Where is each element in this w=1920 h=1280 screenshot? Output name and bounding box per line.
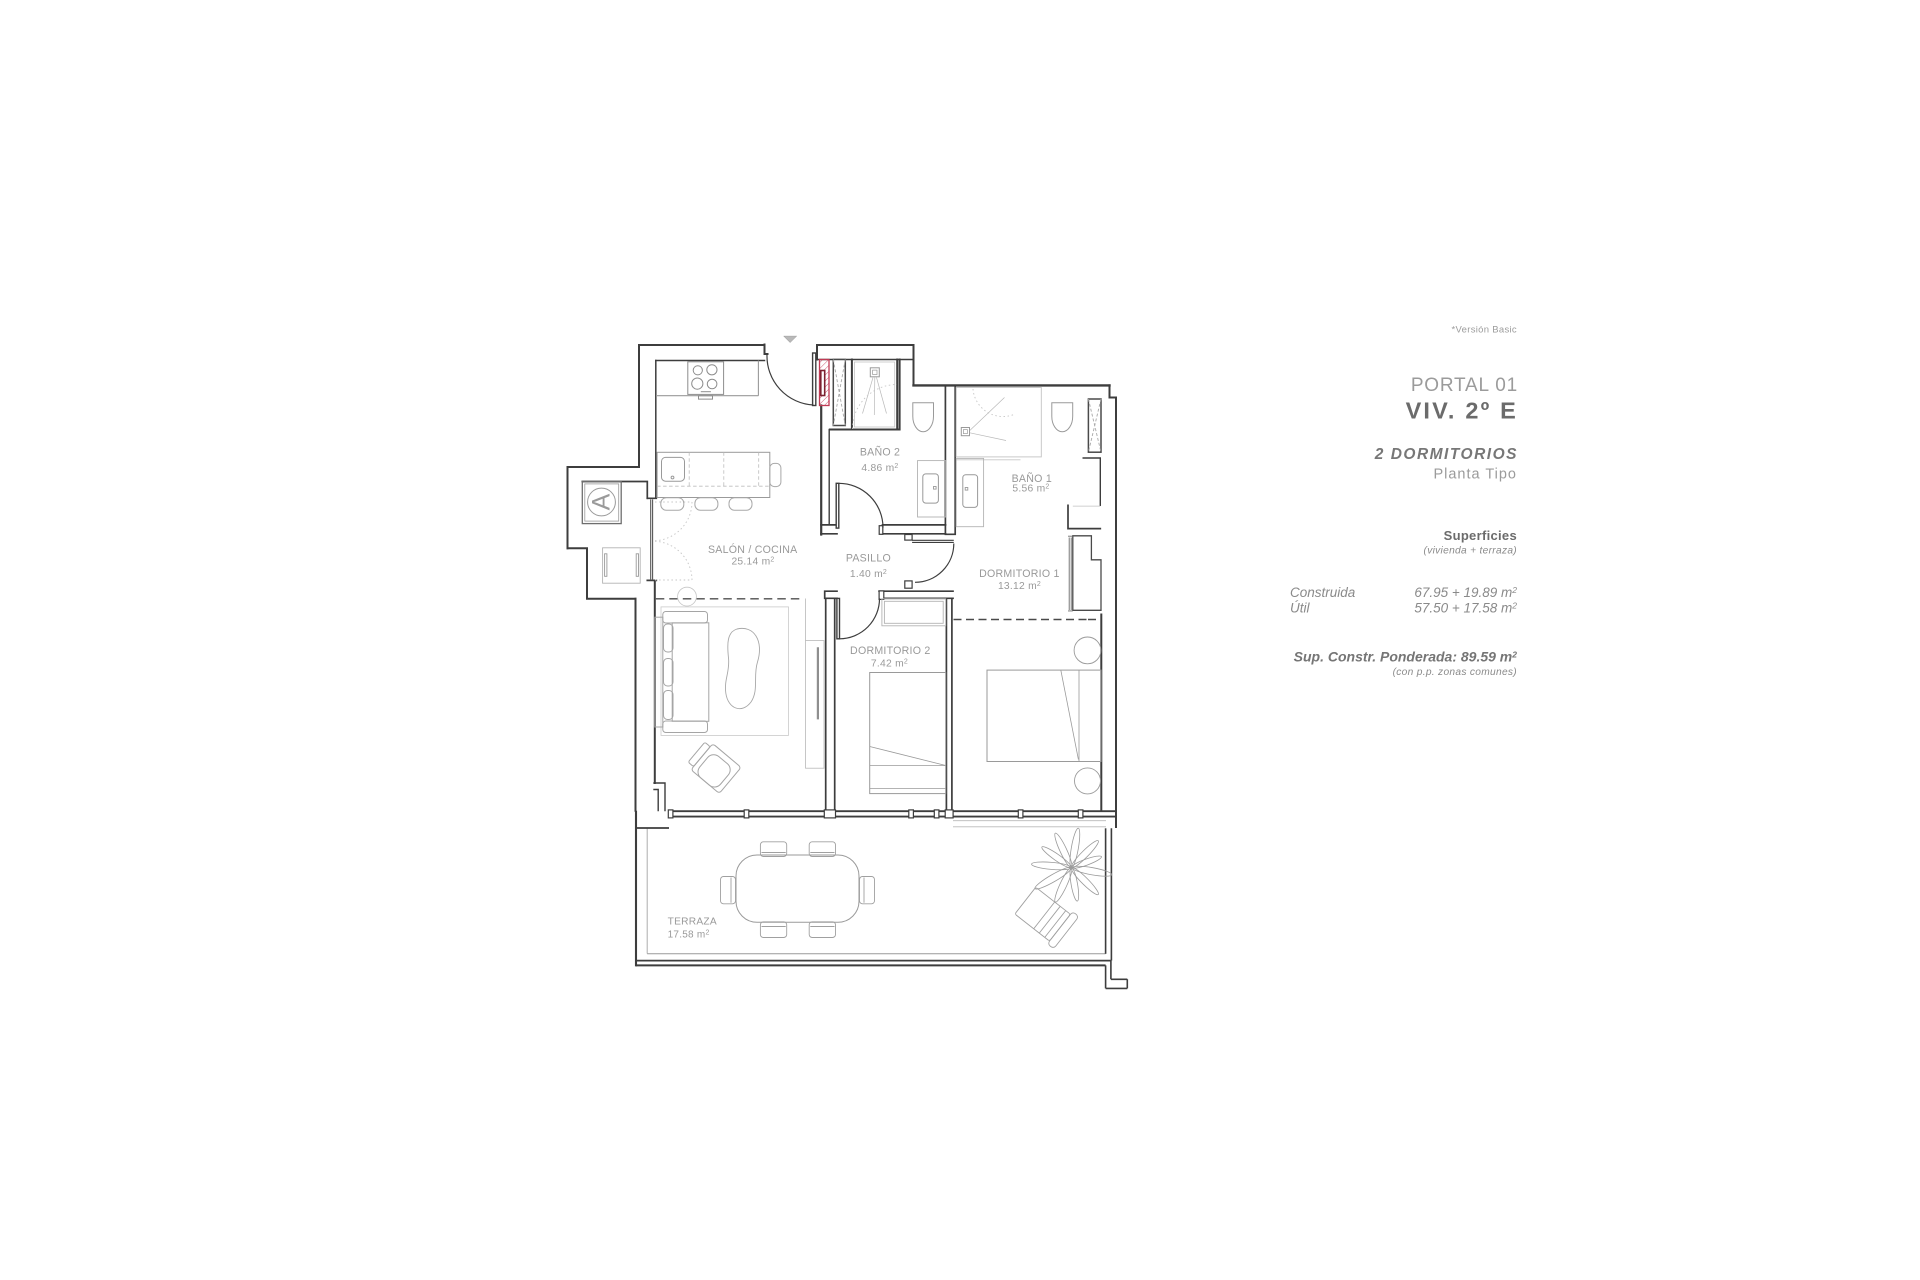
svg-text:(con p.p. zonas comunes): (con p.p. zonas comunes) (1393, 667, 1517, 678)
svg-text:A: A (588, 493, 616, 510)
svg-text:Planta Tipo: Planta Tipo (1433, 467, 1517, 483)
svg-text:13.12 m2: 13.12 m2 (998, 581, 1041, 592)
svg-text:SALÓN / COCINA: SALÓN / COCINA (708, 543, 798, 556)
svg-text:57.50 + 17.58 m2: 57.50 + 17.58 m2 (1414, 601, 1517, 616)
svg-text:Superficies: Superficies (1444, 528, 1517, 543)
svg-text:7.42 m2: 7.42 m2 (871, 659, 908, 670)
svg-text:VIV. 2º E: VIV. 2º E (1406, 398, 1518, 424)
svg-text:PASILLO: PASILLO (846, 552, 891, 564)
svg-text:Construida: Construida (1290, 585, 1356, 600)
svg-text:Útil: Útil (1290, 601, 1310, 616)
svg-text:25.14 m2: 25.14 m2 (731, 557, 774, 568)
svg-text:17.58 m2: 17.58 m2 (668, 930, 710, 941)
svg-text:DORMITORIO 1: DORMITORIO 1 (979, 568, 1060, 580)
svg-text:5.56 m2: 5.56 m2 (1012, 484, 1049, 495)
svg-text:PORTAL 01: PORTAL 01 (1411, 375, 1518, 396)
svg-text:2 DORMITORIOS: 2 DORMITORIOS (1374, 446, 1518, 463)
svg-text:DORMITORIO 2: DORMITORIO 2 (850, 645, 931, 657)
svg-text:*Versión Basic: *Versión Basic (1452, 325, 1517, 336)
svg-text:67.95 + 19.89 m2: 67.95 + 19.89 m2 (1414, 585, 1517, 600)
svg-text:TERRAZA: TERRAZA (668, 917, 717, 928)
svg-text:4.86 m2: 4.86 m2 (861, 463, 898, 474)
svg-text:Sup. Constr. Ponderada: 89.59: Sup. Constr. Ponderada: 89.59 m2 (1294, 649, 1518, 665)
svg-text:1.40 m2: 1.40 m2 (850, 569, 887, 580)
svg-text:BAÑO 2: BAÑO 2 (860, 446, 900, 459)
svg-text:(vivienda + terraza): (vivienda + terraza) (1424, 546, 1517, 557)
